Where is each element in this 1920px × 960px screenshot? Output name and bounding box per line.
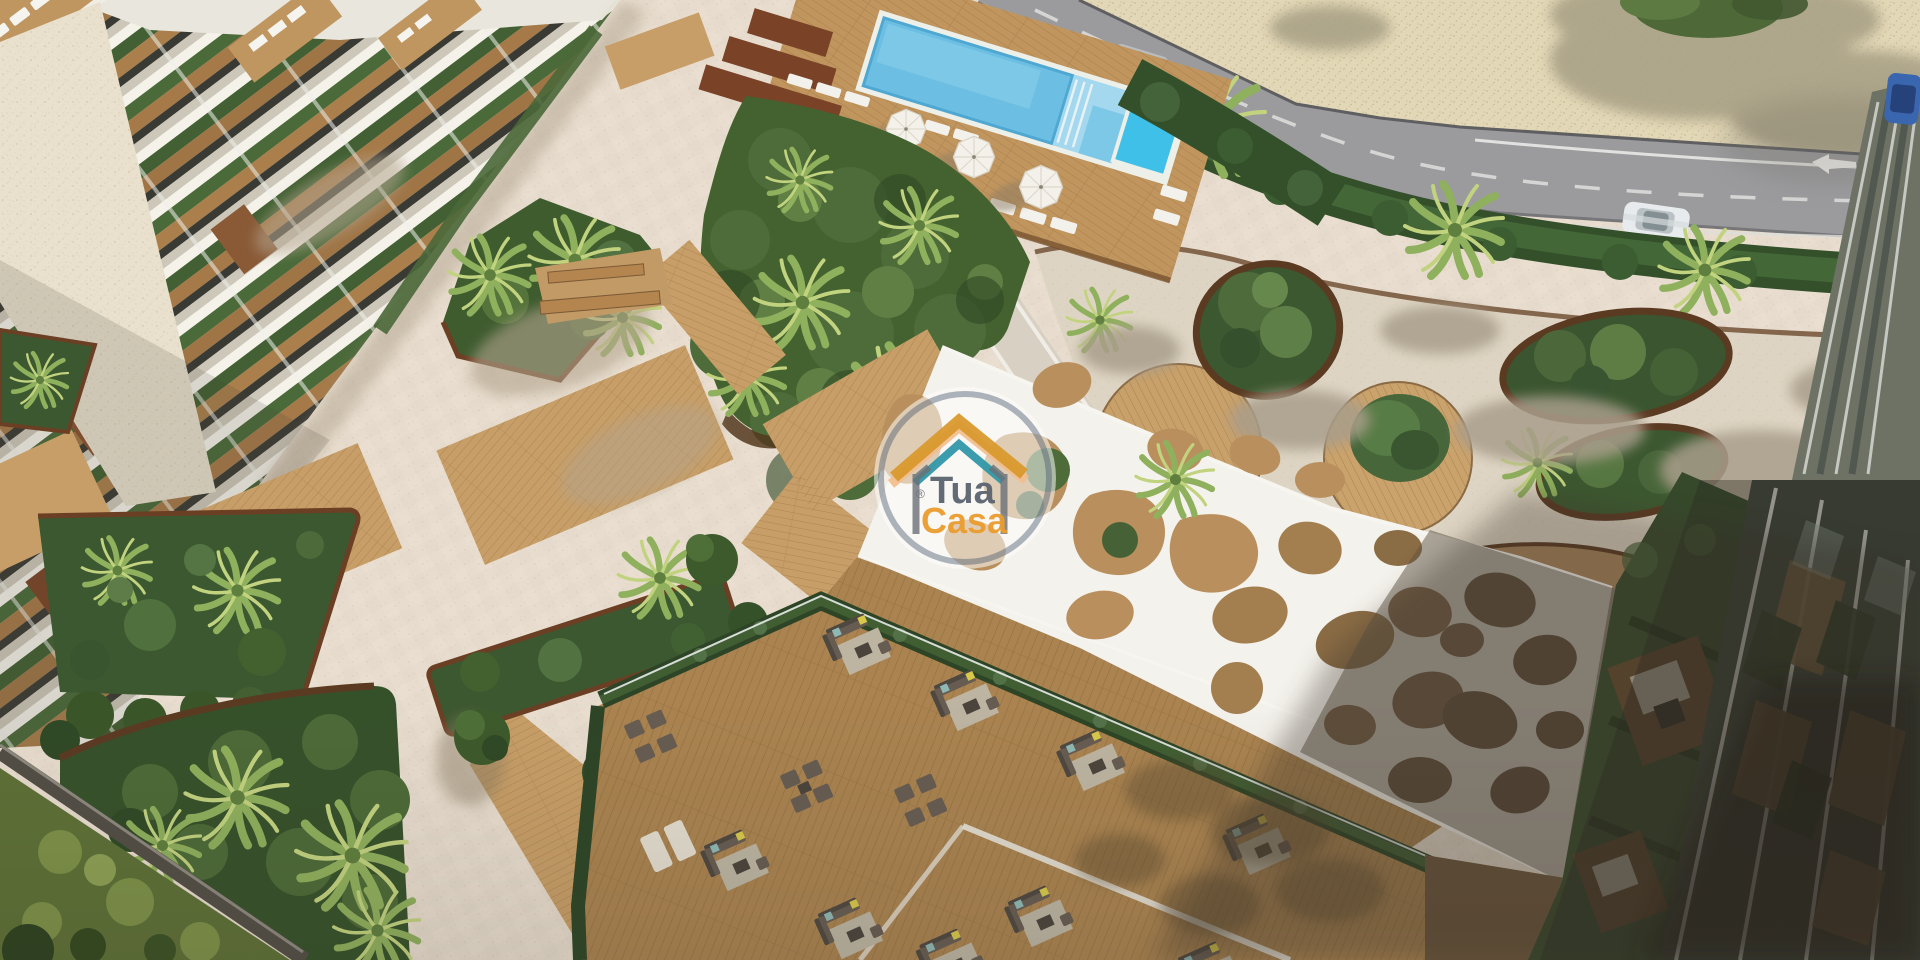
svg-text:®: ® (916, 487, 925, 501)
svg-text:Casa: Casa (921, 500, 1008, 541)
